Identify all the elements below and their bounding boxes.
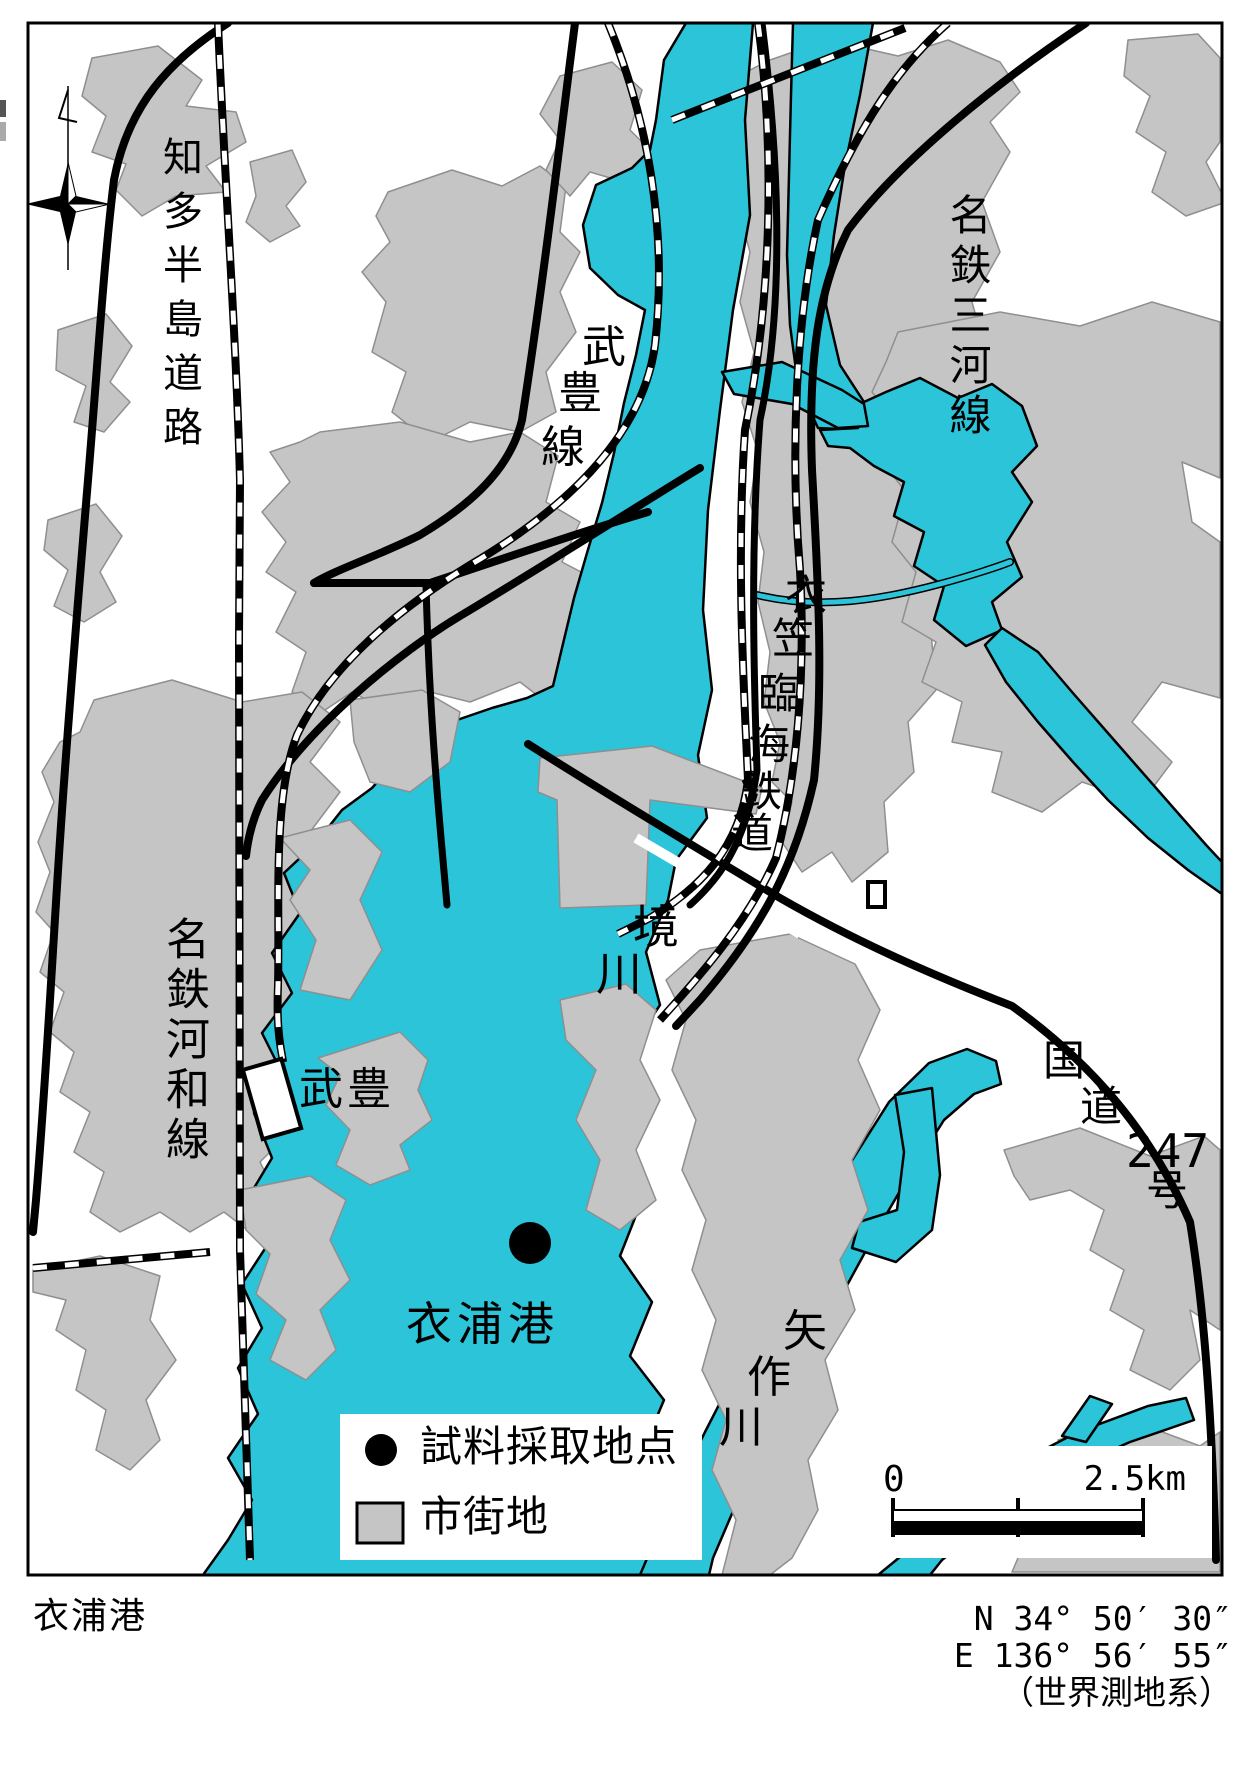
footer-title: 衣浦港	[33, 1598, 147, 1634]
label-chita-peninsula-road: 知多半島道路	[159, 136, 199, 460]
label-rinkai-railway-char: 臨	[758, 673, 800, 715]
scalebar-start-label: 0	[883, 1462, 905, 1498]
label-route247-char: 号	[1146, 1170, 1188, 1212]
label-yahagi-river-char: 作	[747, 1356, 791, 1400]
label-yahagi-river-char: 川	[719, 1406, 763, 1450]
legend-urban-area-label: 市街地	[420, 1496, 549, 1538]
label-rinkai-railway-char: 道	[731, 813, 773, 855]
label-rinkai-railway-char: 海	[748, 724, 790, 766]
label-route247-char: 道	[1080, 1086, 1122, 1128]
compass-rose-icon	[26, 86, 110, 270]
label-route247-char: 国	[1043, 1040, 1085, 1082]
label-taketoyo-line-char: 武	[582, 326, 626, 370]
label-taketoyo-line-char: 線	[541, 426, 585, 470]
legend-sample-point-label: 試料採取地点	[420, 1426, 678, 1468]
scalebar-end-label: 2.5km	[1020, 1462, 1186, 1496]
label-meitetsu-kowa-line: 名鉄河和線	[161, 916, 205, 1166]
legend-sample-dot-icon	[365, 1434, 397, 1466]
label-rinkai-railway-char: 鉄	[740, 771, 782, 813]
datum-note: （世界測地系）	[780, 1674, 1232, 1711]
longitude-value: E 136° 56′ 55″	[780, 1637, 1232, 1674]
label-meitetsu-mikawa-line: 名鉄三河線	[946, 193, 988, 443]
footer-coordinates: N 34° 50′ 30″ E 136° 56′ 55″ （世界測地系）	[780, 1600, 1232, 1711]
margin-fragments	[0, 100, 6, 141]
small-station-box	[868, 882, 885, 907]
label-sakai-river-char: 川	[596, 951, 642, 997]
label-taketoyo-station: 武豊	[299, 1068, 395, 1112]
sample-point-dot	[509, 1222, 551, 1264]
map-page: 知多半島道路 武 豊 線 名鉄三河線 衣 笠 臨 海 鉄 道 境 川 名鉄河和線…	[0, 0, 1252, 1789]
label-sakai-river-char: 境	[633, 904, 679, 950]
label-yahagi-river-char: 矢	[783, 1310, 827, 1354]
label-rinkai-railway-char: 衣	[785, 575, 827, 617]
latitude-value: N 34° 50′ 30″	[780, 1600, 1232, 1637]
label-taketoyo-line-char: 豊	[558, 372, 602, 416]
legend-urban-swatch-icon	[357, 1503, 403, 1543]
label-rinkai-railway-char: 笠	[772, 618, 814, 660]
label-kinuura-port: 衣浦港	[406, 1301, 559, 1347]
